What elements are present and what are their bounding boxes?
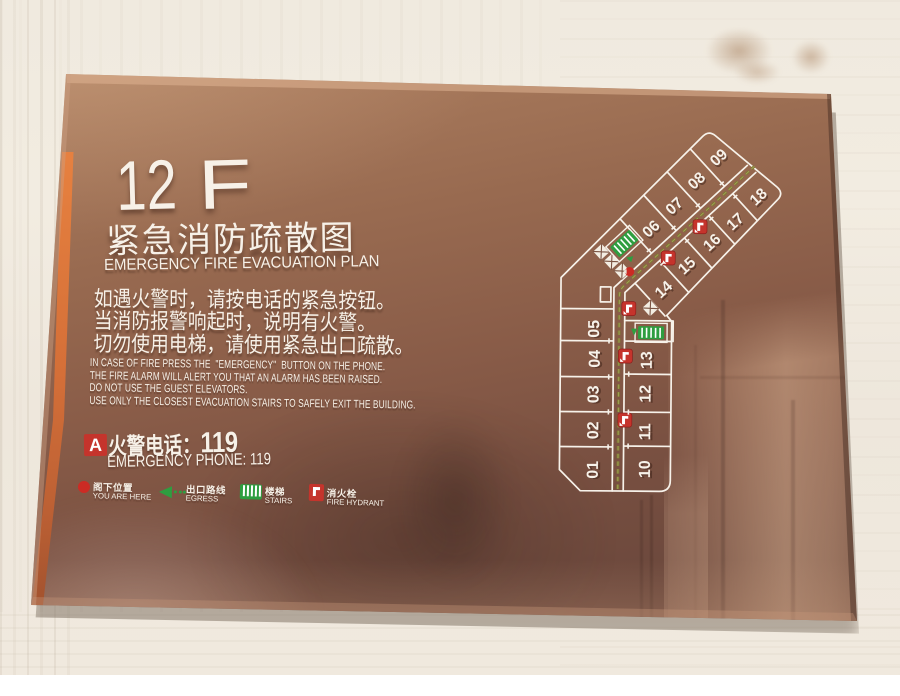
svg-text:17: 17 [723, 210, 747, 234]
svg-text:09: 09 [707, 146, 731, 170]
svg-text:14: 14 [652, 278, 676, 302]
svg-text:06: 06 [639, 217, 663, 241]
svg-text:02: 02 [585, 421, 602, 439]
svg-text:10: 10 [637, 460, 654, 478]
svg-text:07: 07 [663, 194, 687, 218]
svg-text:01: 01 [585, 461, 602, 479]
svg-text:08: 08 [685, 169, 709, 193]
svg-text:12: 12 [637, 385, 654, 403]
svg-text:16: 16 [700, 230, 724, 254]
svg-text:13: 13 [639, 351, 656, 369]
svg-text:03: 03 [585, 385, 602, 403]
svg-text:05: 05 [586, 320, 603, 338]
svg-text:18: 18 [747, 185, 771, 209]
svg-text:04: 04 [587, 350, 604, 368]
svg-text:11: 11 [637, 423, 654, 440]
svg-text:15: 15 [675, 254, 699, 278]
